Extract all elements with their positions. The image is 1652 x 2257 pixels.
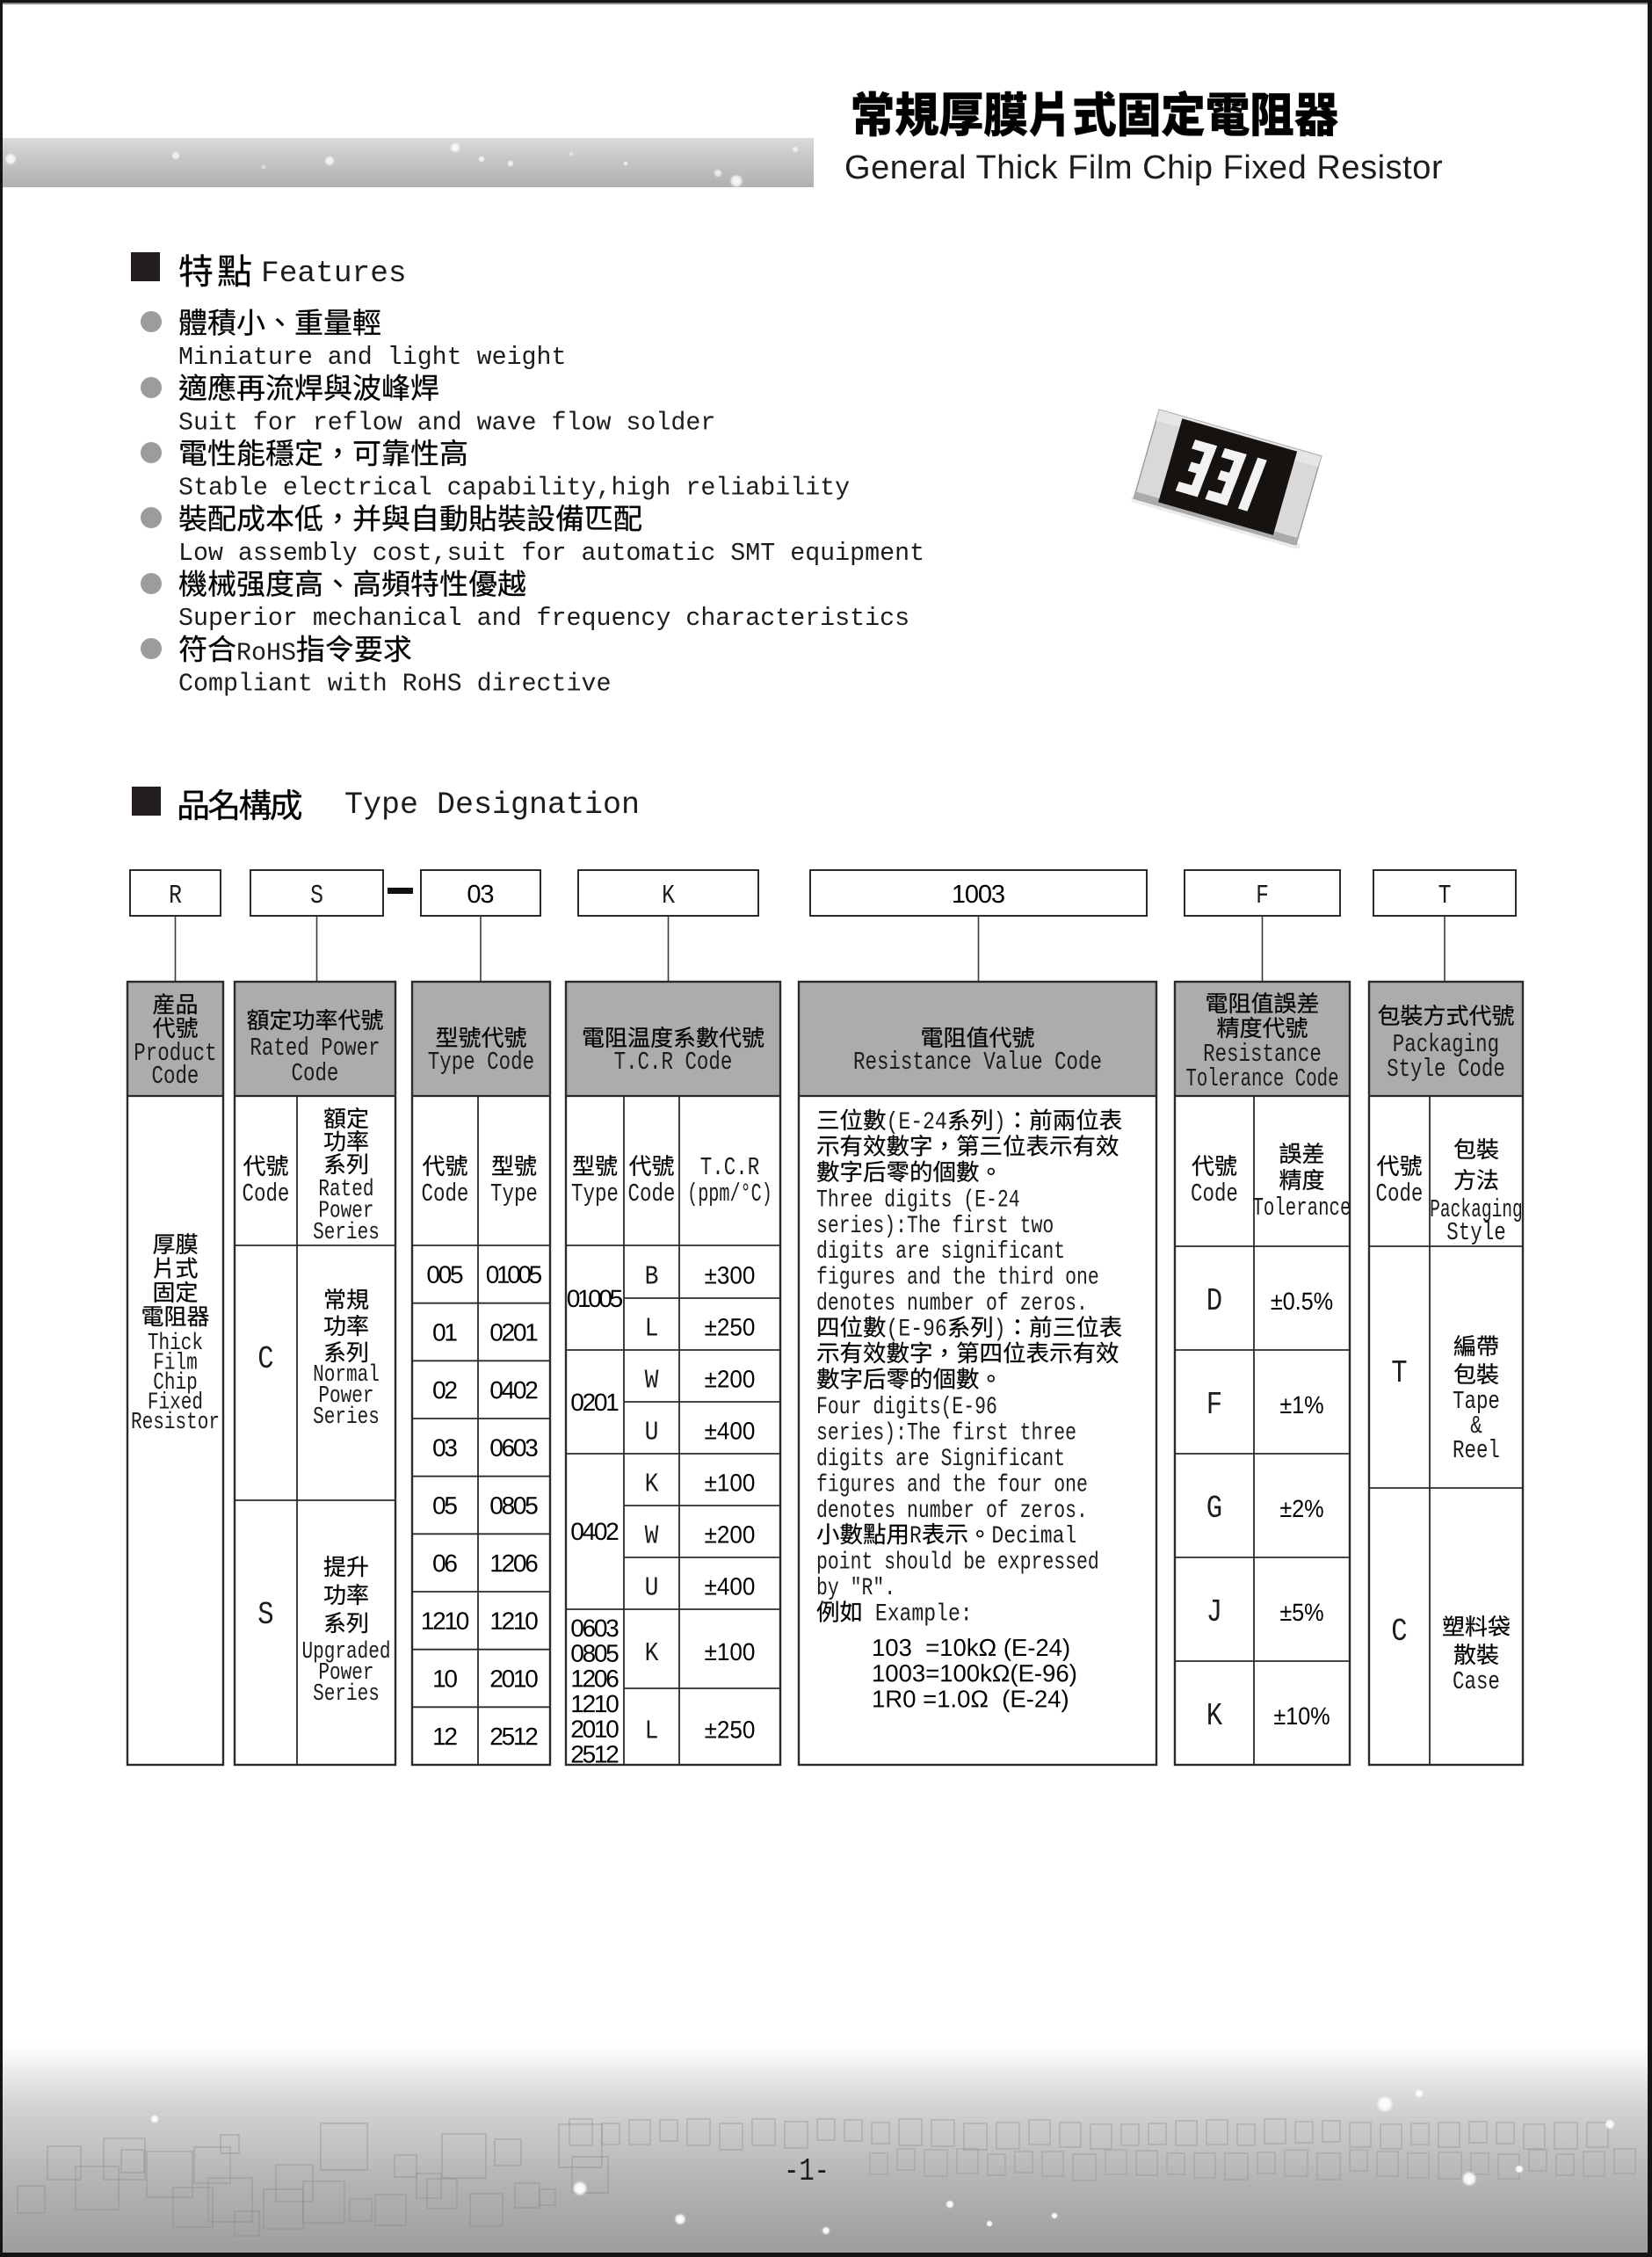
svg-text:Style: Style — [1446, 1219, 1505, 1247]
svg-text:digits are Significant: digits are Significant — [816, 1445, 1065, 1472]
svg-text:W: W — [645, 1520, 659, 1552]
svg-text:(E-24: (E-24 — [887, 1108, 947, 1136]
svg-text:Code: Code — [422, 1180, 469, 1208]
svg-text:K: K — [645, 1637, 659, 1669]
svg-text:Case: Case — [1453, 1668, 1500, 1696]
svg-text:General Thick Film Chip Fixed: General Thick Film Chip Fixed Resistor — [844, 149, 1443, 186]
svg-text:): ) — [994, 1108, 1006, 1136]
svg-text:B: B — [645, 1261, 659, 1293]
svg-text:Four digits(E-96: Four digits(E-96 — [816, 1394, 997, 1421]
svg-text:Miniature and light weight: Miniature and light weight — [178, 344, 567, 372]
svg-text:K: K — [645, 1469, 659, 1500]
svg-text:Code: Code — [292, 1060, 339, 1088]
svg-text:Series: Series — [313, 1404, 380, 1431]
svg-text:U: U — [645, 1572, 659, 1604]
svg-text:G: G — [1206, 1491, 1222, 1528]
svg-text:L: L — [645, 1313, 659, 1345]
svg-text:Decimal: Decimal — [991, 1522, 1076, 1549]
svg-text:T.C.R: T.C.R — [700, 1154, 759, 1182]
svg-text:Tolerance: Tolerance — [1253, 1194, 1351, 1223]
svg-text:series):The first three: series):The first three — [816, 1419, 1076, 1447]
svg-text:R: R — [909, 1522, 922, 1549]
svg-text:Series: Series — [313, 1681, 380, 1708]
svg-text:figures and the four one: figures and the four one — [816, 1471, 1088, 1499]
svg-text:Tolerance Code: Tolerance Code — [1185, 1064, 1338, 1093]
svg-text:Features: Features — [261, 257, 407, 291]
svg-text:J: J — [1206, 1595, 1222, 1631]
svg-text:Code: Code — [152, 1063, 199, 1091]
svg-text:Low assembly cost,suit for aut: Low assembly cost,suit for automatic SMT… — [178, 540, 924, 568]
svg-text:U: U — [645, 1417, 659, 1448]
svg-text:F: F — [1256, 882, 1269, 911]
svg-text:W: W — [645, 1365, 659, 1397]
svg-text:Three digits (E-24: Three digits (E-24 — [816, 1187, 1020, 1214]
svg-text:R: R — [169, 882, 182, 911]
svg-text:-1-: -1- — [784, 2153, 830, 2189]
svg-text:Stable electrical capability,h: Stable electrical capability,high reliab… — [178, 475, 850, 503]
svg-text:Code: Code — [1376, 1180, 1424, 1208]
svg-text:Type: Type — [490, 1180, 538, 1208]
svg-text:Superior mechanical and freque: Superior mechanical and frequency charac… — [178, 605, 909, 633]
svg-text:Code: Code — [628, 1180, 676, 1208]
svg-text:series):The first two: series):The first two — [816, 1212, 1054, 1239]
svg-text:Type Code: Type Code — [428, 1049, 534, 1077]
svg-text:T.C.R Code: T.C.R Code — [614, 1049, 733, 1077]
svg-text:Example:: Example: — [863, 1600, 973, 1628]
svg-text:S: S — [257, 1598, 273, 1634]
svg-text:Type: Type — [571, 1180, 619, 1208]
svg-text:F: F — [1206, 1388, 1222, 1424]
svg-text:S: S — [310, 882, 323, 911]
svg-text:C: C — [257, 1342, 273, 1378]
svg-text:Reel: Reel — [1453, 1437, 1500, 1465]
svg-text:RoHS: RoHS — [236, 640, 296, 668]
svg-text:Rated Power: Rated Power — [250, 1034, 380, 1063]
svg-text:L: L — [645, 1716, 659, 1747]
svg-text:digits are significant: digits are significant — [816, 1238, 1065, 1266]
svg-text:Resistance Value Code: Resistance Value Code — [853, 1049, 1102, 1077]
svg-text:Resistor: Resistor — [131, 1410, 220, 1436]
svg-text:Style Code: Style Code — [1387, 1056, 1505, 1084]
svg-text:denotes number of zeros.: denotes number of zeros. — [816, 1290, 1088, 1317]
svg-text:D: D — [1206, 1284, 1222, 1320]
svg-text:Type Designation: Type Designation — [344, 787, 640, 823]
svg-text:by "R".: by "R". — [816, 1575, 895, 1602]
svg-text:K: K — [662, 882, 675, 911]
svg-text:Suit for reflow and wave flow: Suit for reflow and wave flow solder — [178, 409, 715, 437]
svg-text:figures and the third one: figures and the third one — [816, 1264, 1099, 1291]
svg-text:(ppm/°C): (ppm/°C) — [687, 1180, 772, 1208]
svg-text:Code: Code — [1191, 1180, 1238, 1208]
svg-text:Series: Series — [313, 1220, 380, 1246]
svg-text:T: T — [1438, 882, 1452, 911]
svg-text:Compliant with RoHS directive: Compliant with RoHS directive — [178, 671, 611, 699]
svg-text:K: K — [1206, 1699, 1222, 1735]
svg-text:): ) — [994, 1316, 1006, 1343]
svg-text:Code: Code — [243, 1180, 290, 1208]
svg-text:point should be expressed: point should be expressed — [816, 1549, 1099, 1576]
svg-text:(E-96: (E-96 — [887, 1316, 947, 1343]
svg-text:denotes number of zeros.: denotes number of zeros. — [816, 1497, 1088, 1524]
svg-text:C: C — [1391, 1615, 1407, 1651]
svg-text:T: T — [1391, 1356, 1407, 1392]
